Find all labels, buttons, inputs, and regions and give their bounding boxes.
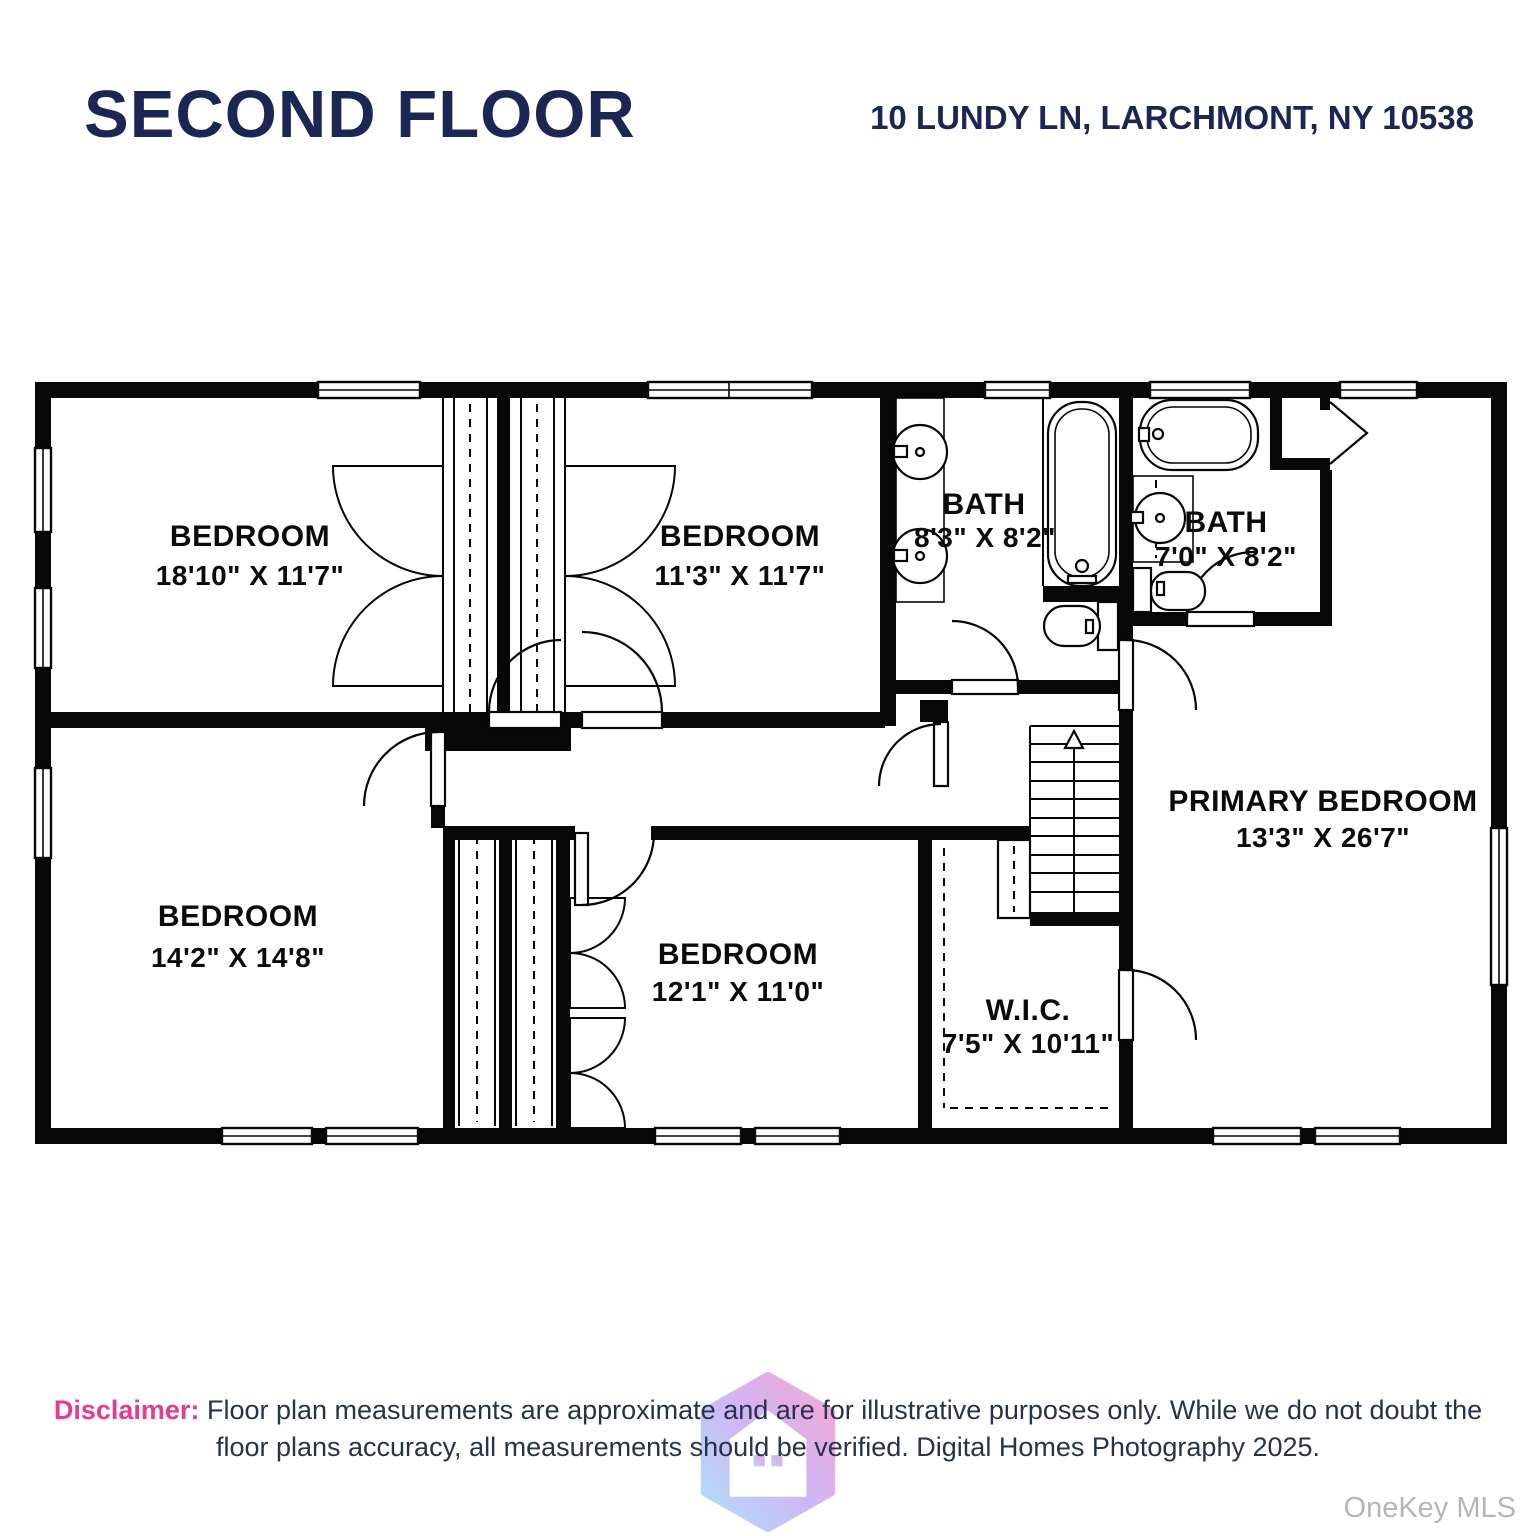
onekey-mls-watermark: OneKey MLS (1344, 1492, 1516, 1525)
window (35, 588, 51, 668)
room-dims: 11'3" X 11'7" (655, 560, 826, 591)
room-dims: 18'10" X 11'7" (156, 560, 345, 591)
room-label: BATH (942, 488, 1025, 521)
disclaimer-line1: Floor plan measurements are approximate … (207, 1395, 1482, 1425)
room-labels: BEDROOM 18'10" X 11'7" BEDROOM 11'3" X 1… (151, 488, 1478, 1059)
stairs (998, 726, 1119, 918)
window (35, 448, 51, 532)
disclaimer-label: Disclaimer: (54, 1395, 200, 1425)
room-dims: 8'3" X 8'2" (914, 522, 1056, 553)
room-label: BEDROOM (158, 900, 318, 933)
window (35, 768, 51, 858)
door-linen-nook (1330, 402, 1367, 464)
window (1213, 1128, 1301, 1144)
bathtub (1048, 402, 1116, 586)
room-label: PRIMARY BEDROOM (1168, 785, 1477, 818)
room-label: W.I.C. (986, 994, 1071, 1027)
window (655, 1128, 741, 1144)
toilet (1044, 602, 1118, 650)
window (326, 1128, 418, 1144)
floor-plan-drawing: BEDROOM 18'10" X 11'7" BEDROOM 11'3" X 1… (0, 0, 1536, 1536)
door-primary-bedroom (1119, 640, 1196, 710)
window (755, 1128, 840, 1144)
floor-plan-page: SECOND FLOOR 10 LUNDY LN, LARCHMONT, NY … (0, 0, 1536, 1536)
sink (893, 425, 947, 479)
room-dims: 7'0" X 8'2" (1155, 541, 1297, 572)
room-label: BEDROOM (660, 520, 820, 553)
door-hall-closet (879, 722, 948, 786)
room-label: BATH (1184, 506, 1267, 539)
window (1315, 1128, 1400, 1144)
door-wic (1119, 970, 1196, 1040)
room-dims: 14'2" X 14'8" (151, 942, 325, 973)
window (1491, 828, 1507, 985)
walls (35, 382, 1507, 1144)
window (222, 1128, 312, 1144)
room-dims: 7'5" X 10'11" (942, 1028, 1115, 1059)
window (648, 382, 812, 398)
windows (35, 382, 1507, 1144)
closet-bottom (459, 830, 625, 1128)
disclaimer: Disclaimer: Floor plan measurements are … (0, 1392, 1536, 1466)
window (318, 382, 420, 398)
room-dims: 12'1" X 11'0" (652, 976, 825, 1007)
room-label: BEDROOM (170, 520, 330, 553)
bathtub (1139, 400, 1258, 470)
room-dims: 13'3" X 26'7" (1236, 822, 1410, 853)
door-bath1 (952, 621, 1018, 694)
toilet (1133, 568, 1205, 612)
window (1340, 382, 1417, 398)
stairs-up-arrow (1065, 731, 1083, 748)
window (1150, 382, 1250, 398)
door-bedroom4 (575, 833, 654, 905)
stair-closet (998, 840, 1030, 918)
disclaimer-line2: floor plans accuracy, all measurements s… (216, 1432, 1320, 1462)
room-label: BEDROOM (658, 938, 818, 971)
door-bedroom3 (364, 732, 445, 806)
window (985, 382, 1050, 398)
